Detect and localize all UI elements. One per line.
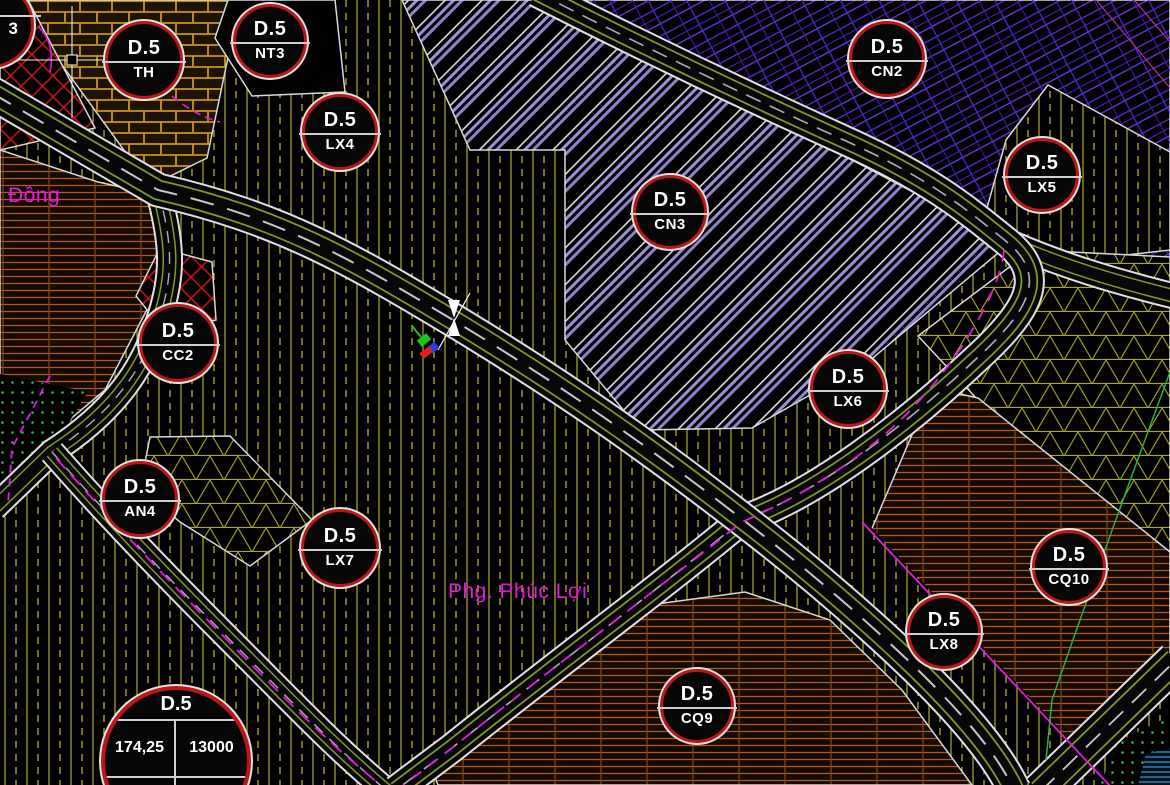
marker-code: CN2 <box>871 64 903 81</box>
zone-marker-lx8[interactable]: D.5LX8 <box>907 595 981 669</box>
marker-divider <box>846 60 929 62</box>
marker-divider <box>1002 176 1082 178</box>
region-label-phuc-loi[interactable]: Phg. Phúc Lợi <box>448 580 587 604</box>
marker-zone-label: D.5 <box>324 526 357 547</box>
marker-code: TH <box>134 65 155 82</box>
zone-marker-cn2[interactable]: D.5CN2 <box>849 21 925 97</box>
marker-zone-label: D.5 <box>128 38 161 59</box>
marker-code: CQ9 <box>681 711 713 728</box>
marker-code: LX7 <box>325 553 354 570</box>
marker-zone-label: D.5 <box>654 190 687 211</box>
marker-code: LX4 <box>325 137 354 154</box>
marker-divider <box>807 390 890 392</box>
region-label-dong[interactable]: Đồng <box>8 184 60 208</box>
marker-code: CC2 <box>162 348 194 365</box>
marker-zone-label: D.5 <box>162 321 195 342</box>
marker-divider <box>299 133 382 135</box>
zone-marker-cq9[interactable]: D.5CQ9 <box>660 669 734 743</box>
marker-divider <box>230 42 310 44</box>
zone-marker-cn3[interactable]: D.5CN3 <box>633 175 707 249</box>
marker-divider <box>0 15 41 17</box>
plan-drawing <box>0 0 1170 785</box>
drawing-canvas[interactable]: Đồng Phg. Phúc Lợi 3 D.5THD.5NT3D.5LX4D.… <box>0 0 1170 785</box>
marker-code: LX6 <box>833 394 862 411</box>
marker-divider <box>298 549 383 551</box>
zone-marker-an4[interactable]: D.5AN4 <box>102 461 178 537</box>
marker-zone-label: D.5 <box>254 19 287 40</box>
marker-code: LX8 <box>929 637 958 654</box>
zone-marker-cq10[interactable]: D.5CQ10 <box>1032 530 1106 604</box>
stat-cell: 2-5 <box>176 776 247 785</box>
stat-cell: 13000 <box>176 719 247 776</box>
marker-code: CN3 <box>654 217 686 234</box>
marker-zone-label: D.5 <box>681 684 714 705</box>
marker-zone-label: D.5 <box>928 610 961 631</box>
marker-divider <box>102 61 187 63</box>
zone-marker-lx7[interactable]: D.5LX7 <box>301 509 379 587</box>
marker-divider <box>99 500 182 502</box>
zone-marker-lx4[interactable]: D.5LX4 <box>302 94 378 170</box>
zone-marker-cc2[interactable]: D.5CC2 <box>139 304 217 382</box>
marker-divider <box>657 707 737 709</box>
marker-code: CQ10 <box>1048 572 1089 589</box>
zone-marker-th[interactable]: D.5TH <box>105 21 183 99</box>
marker-code: LX5 <box>1027 180 1056 197</box>
stat-cell: 174,25 <box>105 719 176 776</box>
zone-marker-nt3[interactable]: D.5NT3 <box>233 4 307 78</box>
marker-divider <box>904 633 984 635</box>
stat-cell: 14-59 <box>105 776 176 785</box>
marker-zone-label: D.5 <box>1053 545 1086 566</box>
marker-zone-label: D.5 <box>832 367 865 388</box>
stat-table: 174,25 13000 14-59 2-5 <box>105 719 247 785</box>
marker-zone-label: D.5 <box>871 37 904 58</box>
marker-divider <box>630 213 710 215</box>
marker-zone-label: D.5 <box>1026 153 1059 174</box>
marker-zone-label: D.5 <box>324 110 357 131</box>
zone-marker-lx6[interactable]: D.5LX6 <box>810 351 886 427</box>
marker-zone-label: D.5 <box>124 477 157 498</box>
marker-divider <box>136 344 221 346</box>
marker-divider <box>1029 568 1109 570</box>
marker-code: NT3 <box>255 46 285 63</box>
marker-code: 3 <box>9 19 18 39</box>
marker-code: AN4 <box>124 504 156 521</box>
zone-marker-lx5[interactable]: D.5LX5 <box>1005 138 1079 212</box>
